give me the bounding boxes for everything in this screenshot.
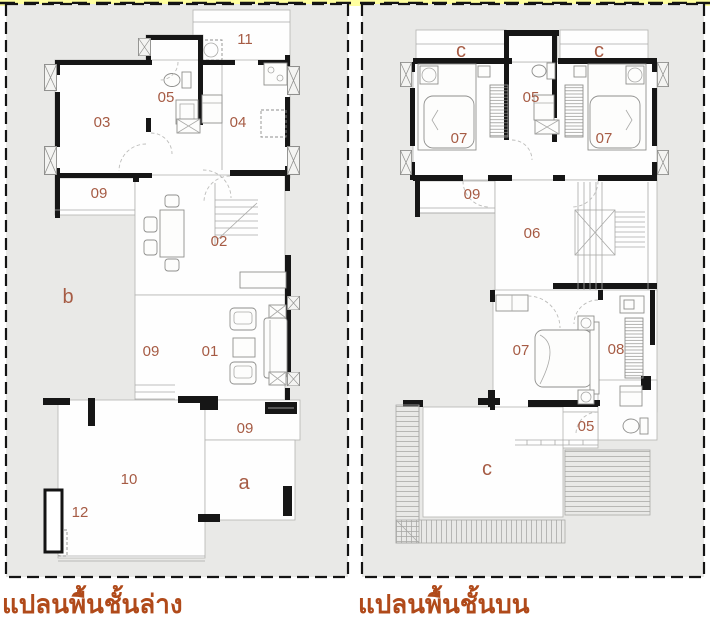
room-label: 09 <box>91 185 108 202</box>
room-label: b <box>62 286 73 308</box>
floor-plans-drawing: 11 05 03 04 09 02 b 09 01 09 10 a 12 <box>0 0 710 582</box>
room-label: 12 <box>72 504 89 521</box>
room-label: c <box>456 40 466 62</box>
room-label: 06 <box>524 225 541 242</box>
room-label: 09 <box>464 186 481 203</box>
upper-floor-title: แปลนพื้นชั้นบน <box>358 586 530 624</box>
room-label: 11 <box>237 31 253 48</box>
upper-floor-plan: c c 05 07 07 09 06 07 08 05 c <box>362 4 704 577</box>
room-label: 09 <box>237 420 254 437</box>
room-label: 04 <box>230 114 247 131</box>
room-label: 07 <box>451 130 468 147</box>
room-label: c <box>482 458 492 480</box>
room-label: 05 <box>523 89 540 106</box>
room-label: 05 <box>578 418 595 435</box>
room-label: 09 <box>143 343 160 360</box>
room-label: c <box>594 40 604 62</box>
room-label: 10 <box>121 471 138 488</box>
room-label: 08 <box>608 341 625 358</box>
room-label: 01 <box>202 343 219 360</box>
ground-floor-plan: 11 05 03 04 09 02 b 09 01 09 10 a 12 <box>6 4 348 577</box>
floor-plan-canvas: 11 05 03 04 09 02 b 09 01 09 10 a 12 <box>0 0 710 627</box>
ground-floor-title: แปลนพื้นชั้นล่าง <box>2 586 183 624</box>
room-label: a <box>238 472 250 494</box>
room-label: 03 <box>94 114 111 131</box>
room-label: 07 <box>513 342 530 359</box>
room-label: 05 <box>158 89 175 106</box>
room-label: 07 <box>596 130 613 147</box>
room-label: 02 <box>211 233 228 250</box>
